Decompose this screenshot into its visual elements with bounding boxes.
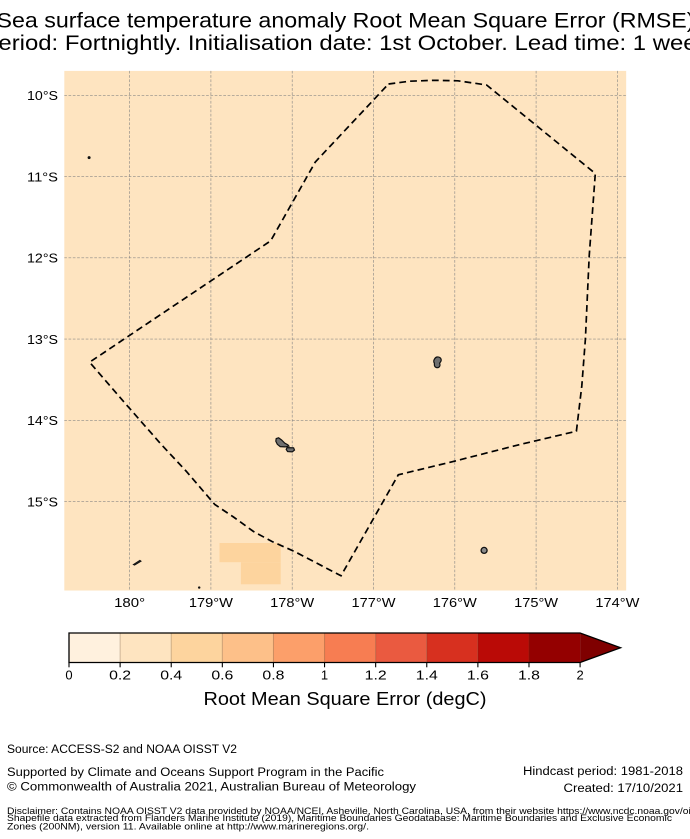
svg-text:Zones (200NM), version 11. Ava: Zones (200NM), version 11. Available onl… xyxy=(7,822,369,832)
svg-text:176°W: 176°W xyxy=(433,595,478,610)
svg-text:1.6: 1.6 xyxy=(467,668,489,683)
svg-text:13°S: 13°S xyxy=(27,332,58,347)
svg-text:178°W: 178°W xyxy=(270,595,315,610)
svg-text:11°S: 11°S xyxy=(27,169,58,184)
svg-text:Root Mean Square Error (degC): Root Mean Square Error (degC) xyxy=(204,689,487,709)
svg-text:14°S: 14°S xyxy=(27,413,58,428)
svg-text:1.2: 1.2 xyxy=(365,668,387,683)
svg-text:1.4: 1.4 xyxy=(416,668,438,683)
svg-text:Source: ACCESS-S2 and NOAA OIS: Source: ACCESS-S2 and NOAA OISST V2 xyxy=(7,744,237,756)
svg-text:0.2: 0.2 xyxy=(109,668,131,683)
svg-text:175°W: 175°W xyxy=(514,595,559,610)
svg-text:179°W: 179°W xyxy=(189,595,234,610)
svg-text:12°S: 12°S xyxy=(27,251,58,266)
svg-text:0.4: 0.4 xyxy=(160,668,182,683)
svg-text:180°: 180° xyxy=(114,595,145,610)
svg-text:© Commonwealth of Australia 20: © Commonwealth of Australia 2021, Austra… xyxy=(7,782,416,794)
svg-text:Hindcast period: 1981-2018: Hindcast period: 1981-2018 xyxy=(523,766,683,778)
svg-text:2: 2 xyxy=(576,668,583,683)
svg-text:10°S: 10°S xyxy=(27,88,58,103)
svg-text:1.8: 1.8 xyxy=(518,668,540,683)
svg-text:Period: Fortnightly. Initialis: Period: Fortnightly. Initialisation date… xyxy=(0,32,690,55)
svg-text:Supported by Climate and Ocean: Supported by Climate and Oceans Support … xyxy=(7,767,384,779)
svg-text:0: 0 xyxy=(65,668,72,683)
svg-text:177°W: 177°W xyxy=(352,595,397,610)
svg-text:0.6: 0.6 xyxy=(211,668,233,683)
svg-text:15°S: 15°S xyxy=(27,494,58,509)
svg-text:Sea surface temperature anomal: Sea surface temperature anomaly Root Mea… xyxy=(0,10,690,33)
svg-text:174°W: 174°W xyxy=(595,595,640,610)
svg-text:Created: 17/10/2021: Created: 17/10/2021 xyxy=(564,783,684,795)
svg-text:0.8: 0.8 xyxy=(262,668,284,683)
svg-text:1: 1 xyxy=(321,668,328,683)
